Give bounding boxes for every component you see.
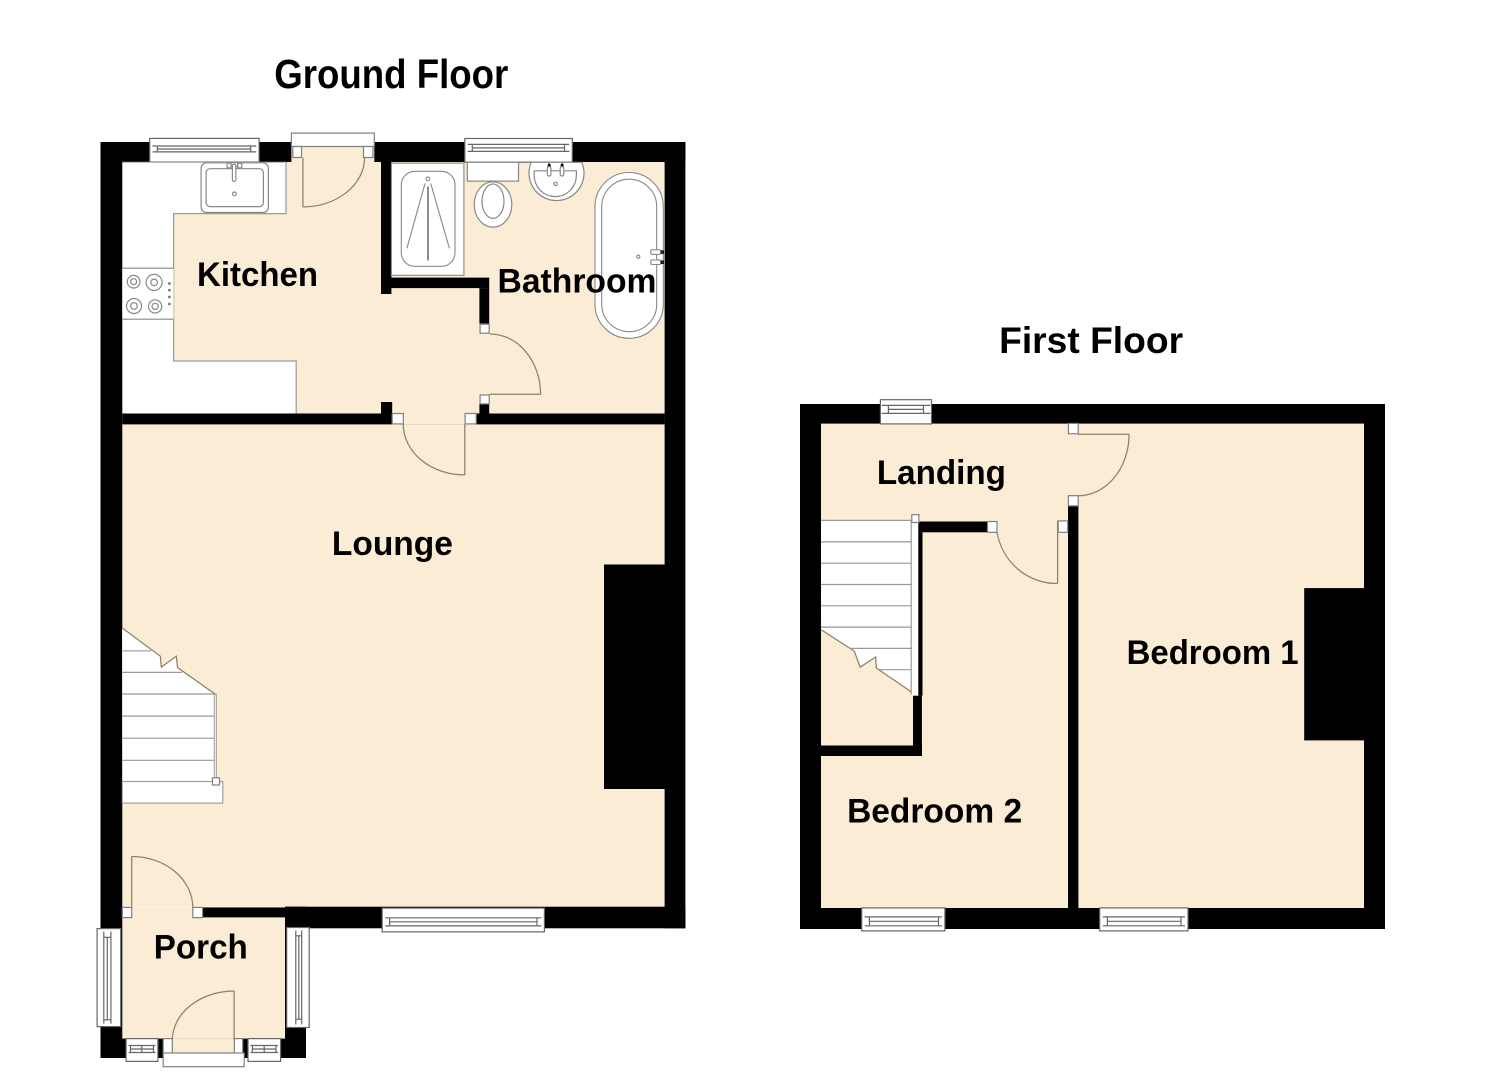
svg-text:First Floor: First Floor — [999, 319, 1183, 361]
svg-text:Bedroom 2: Bedroom 2 — [847, 793, 1022, 831]
svg-text:Bedroom 1: Bedroom 1 — [1127, 634, 1299, 672]
svg-text:Lounge: Lounge — [332, 525, 453, 563]
svg-text:Landing: Landing — [877, 454, 1006, 492]
svg-text:Bathroom: Bathroom — [498, 263, 657, 301]
svg-text:Ground Floor: Ground Floor — [274, 51, 508, 97]
svg-text:Kitchen: Kitchen — [197, 256, 318, 294]
svg-text:Porch: Porch — [154, 928, 248, 966]
